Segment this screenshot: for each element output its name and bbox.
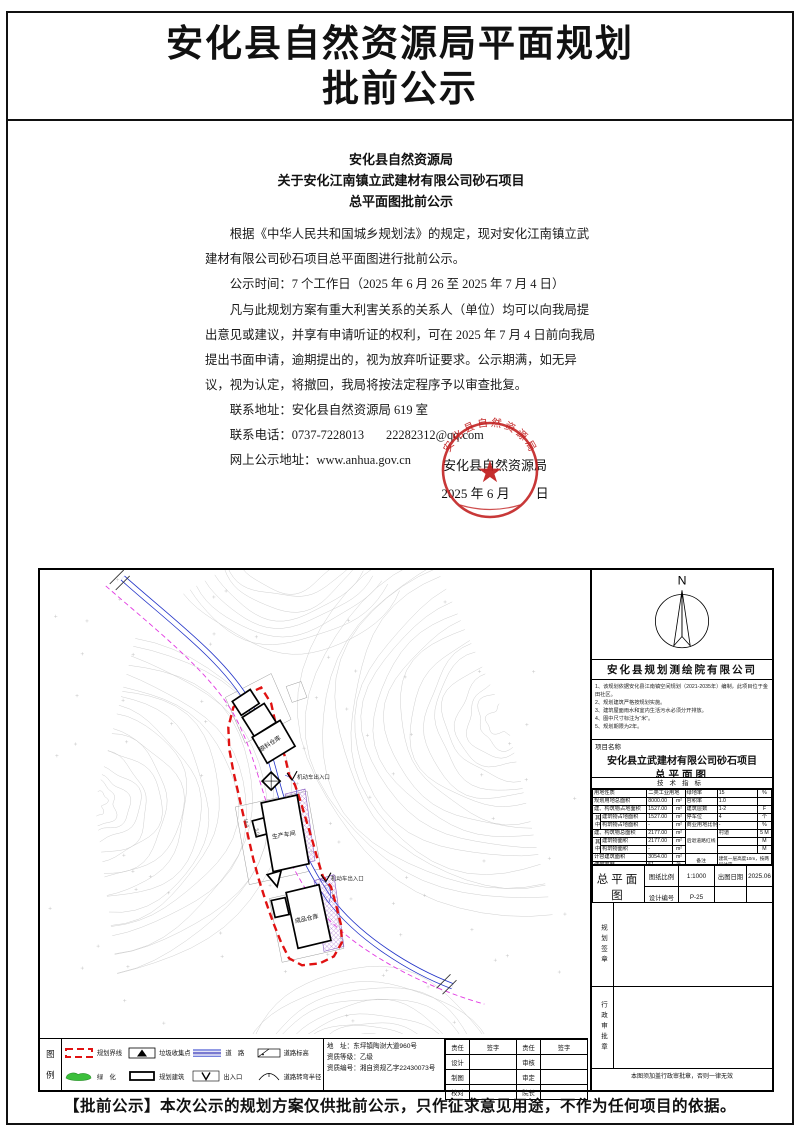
seal-star-icon: ★ [477, 456, 504, 489]
titleblock-note: 本图须加盖行政审批章，否则一律无效 [592, 1069, 772, 1086]
page-title-line2: 批前公示 [322, 66, 478, 111]
contour-line [109, 697, 209, 913]
signature-table-block: 责任签字责任签字 设计审核 制图审定 校对院长 [445, 1039, 588, 1090]
signature-table: 责任签字责任签字 设计审核 制图审定 校对院长 [445, 1039, 588, 1100]
survey-cross-mark [443, 600, 446, 603]
survey-cross-mark [345, 1014, 348, 1017]
survey-cross-mark [49, 907, 52, 910]
survey-cross-mark [132, 653, 135, 656]
contour-line [441, 667, 521, 782]
survey-cross-mark [494, 959, 497, 962]
table-cell: m² [673, 838, 685, 846]
contour-line [112, 674, 246, 936]
table-cell [541, 1055, 588, 1070]
annex-block [271, 898, 289, 918]
notice-paragraph-rights: 凡与此规划方案有重大利害关系的关系人（单位）均可以向我局提出意见或建议，并享有申… [205, 298, 597, 398]
survey-cross-mark [532, 670, 535, 673]
tech-indicators: 用地性质二类工业用地绿地率15% 规划用地总面积8000.00m²容积率1.0 … [592, 789, 772, 865]
survey-cross-mark [480, 773, 483, 776]
legend-item-entrance: 出入口 [192, 1065, 256, 1089]
survey-cross-mark [492, 817, 495, 820]
site-plan-sheet: 原料仓库 生产车间 成品仓库 机动车出入口 机动车出入口 18.0 5.0 N … [38, 568, 774, 1092]
element: 其中建筑物面积2177.00m²M [593, 838, 772, 846]
element [123, 578, 453, 986]
survey-cross-mark [209, 643, 212, 646]
dimension-label: 18.0 [243, 818, 250, 828]
entrance-icon [192, 1070, 220, 1082]
contour-line [279, 999, 460, 1034]
contour-line [228, 570, 352, 596]
table-cell: 二类工业用地 [647, 790, 685, 798]
table-cell [715, 887, 747, 904]
survey-cross-mark [212, 595, 215, 598]
survey-cross-mark [573, 797, 576, 800]
table-cell [747, 887, 773, 904]
notice-heading: 安化县自然资源局 关于安化江南镇立武建材有限公司砂石项目 总平面图批前公示 [205, 150, 597, 212]
survey-cross-mark [399, 933, 402, 936]
survey-cross-mark [81, 652, 84, 655]
notice-heading-line1: 安化县自然资源局 [205, 150, 597, 171]
table-cell: 设计 [446, 1055, 470, 1070]
element: 规划用地总面积8000.00m²容积率1.0 [593, 798, 772, 806]
element: 设计审核 [446, 1055, 588, 1070]
contour-line [190, 584, 388, 645]
table-cell: 签字 [541, 1040, 588, 1055]
contour-line [104, 729, 184, 877]
element: 例 [46, 1069, 55, 1081]
contour-line [100, 767, 142, 842]
table-cell: M [757, 846, 771, 854]
planned-building-icon [128, 1070, 156, 1082]
table-cell: 2177.00 [647, 830, 673, 838]
survey-cross-mark [426, 985, 429, 988]
survey-cross-mark [204, 720, 207, 723]
contour-line [196, 581, 381, 637]
element: 行政审批章 [592, 987, 614, 1068]
firm-grade: 资质等级：乙级 [327, 1053, 441, 1064]
element: 道 路 [225, 1048, 244, 1057]
table-cell: F [757, 806, 771, 814]
trash-collection-point-icon [128, 1047, 156, 1059]
approval-seal-label: 行政审批章 [598, 1001, 608, 1054]
survey-cross-mark [453, 1021, 456, 1024]
firm-cert: 资质编号：湘自资规乙字22430073号 [327, 1064, 441, 1075]
element: 责任签字责任签字 [446, 1040, 588, 1055]
survey-cross-mark [302, 747, 305, 750]
road-elevation-icon [257, 1047, 281, 1059]
north-arrow-box: N [592, 570, 772, 660]
seal-bottom-arc [460, 505, 520, 510]
table-cell: 计容建筑面积 [593, 854, 647, 862]
table-cell: 商业用地比例 [685, 822, 717, 830]
table-cell [470, 1070, 517, 1085]
element: 用地性质二类工业用地绿地率15% 规划用地总面积8000.00m²容积率1.0 … [593, 790, 772, 866]
legend-item-turn-radius: 道路转弯半径 [257, 1065, 321, 1089]
survey-cross-mark [558, 970, 561, 973]
survey-cross-mark [329, 822, 332, 825]
official-seal: 安化县自然资源局 ★ [405, 408, 575, 540]
element [262, 1053, 264, 1055]
note-item: 2、规划建筑严格按规划实施。 [595, 699, 769, 707]
element: 总平面图图纸比例1:1000出图日期2025.06 [593, 866, 773, 887]
contour-line [485, 704, 510, 736]
table-cell: 4 [717, 814, 757, 822]
contour-line [104, 734, 167, 874]
survey-cross-mark [385, 969, 388, 972]
note-item: 3、建筑屋面雨水和室内生活污水必须分开排放。 [595, 707, 769, 715]
table-cell: 1527.00 [647, 806, 673, 814]
survey-cross-mark [116, 578, 119, 581]
survey-cross-mark [525, 778, 528, 781]
element: 绿 化 [97, 1072, 116, 1081]
notice-heading-line3: 总平面图批前公示 [205, 192, 597, 213]
survey-cross-mark [74, 742, 77, 745]
survey-cross-mark [508, 742, 511, 745]
table-cell: 用地性质 [593, 790, 647, 798]
table-cell: M [757, 838, 771, 846]
table-cell: 绿地率 [685, 790, 717, 798]
table-cell: m² [673, 822, 685, 830]
contour-line [259, 988, 477, 1034]
survey-cross-mark [470, 928, 473, 931]
survey-cross-mark [525, 723, 528, 726]
contour-line [410, 640, 526, 806]
legend-bar: 图 例 规划界线 垃圾收集点 道 路 道路标高 [40, 1038, 588, 1090]
table-cell: % [757, 790, 771, 798]
survey-cross-mark [123, 999, 126, 1002]
legend-item-road-elevation: 道路标高 [257, 1041, 321, 1065]
table-cell: 设计编号 [645, 887, 679, 904]
survey-cross-mark [392, 772, 395, 775]
note-item: 1、该规划依据安化县江南镇空间规划（2021-2035年）编制，此项目位于金田社… [595, 683, 769, 699]
legend-item-boundary: 规划界线 [64, 1041, 128, 1065]
approval-seal-area [614, 987, 772, 1068]
element [123, 578, 453, 986]
contour-line [183, 591, 399, 655]
contour-line [111, 691, 219, 925]
contour-line [98, 775, 130, 831]
contour-line [454, 674, 516, 767]
table-cell: 后退道路红线 [685, 830, 717, 854]
survey-cross-mark [221, 955, 224, 958]
contour-line [361, 602, 537, 848]
plan-notes: 1、该规划依据安化县江南镇空间规划（2021-2035年）编制，此项目位于金田社… [592, 680, 772, 740]
table-cell [470, 1055, 517, 1070]
contour-line [373, 614, 534, 837]
survey-cross-mark [225, 704, 228, 707]
contour-line [478, 694, 513, 751]
table-cell: 15 [717, 790, 757, 798]
legend-item-trash-point: 垃圾收集点 [128, 1041, 192, 1065]
survey-cross-mark [81, 966, 84, 969]
element [258, 1049, 280, 1057]
survey-cross-mark [268, 884, 271, 887]
contour-line [238, 570, 340, 594]
table-cell: 规划用地总面积 [593, 798, 647, 806]
road-icon [192, 1047, 222, 1059]
survey-cross-mark [423, 894, 426, 897]
element: 道路标高 [284, 1048, 309, 1057]
turn-radius-icon [257, 1070, 281, 1082]
planning-boundary-icon [64, 1047, 94, 1059]
table-cell: 构筑物面积 [601, 846, 647, 854]
survey-cross-mark [97, 945, 100, 948]
table-cell: m² [673, 798, 685, 806]
table-cell: 5 M [757, 830, 771, 838]
element: 用地性质二类工业用地绿地率15% [593, 790, 772, 798]
element: 图 [46, 1048, 55, 1060]
survey-cross-mark [337, 840, 340, 843]
sheet-name: 总平面图 [593, 866, 645, 904]
table-cell: 出图日期 [715, 866, 747, 887]
survey-cross-mark [255, 635, 258, 638]
element [286, 682, 307, 703]
survey-cross-mark [351, 1019, 354, 1022]
table-cell: 建筑物面积 [601, 838, 647, 846]
contour-line [215, 571, 364, 621]
table-cell: 构筑物占地面积 [601, 822, 647, 830]
survey-cross-mark [382, 974, 385, 977]
table-cell: 2025.06 [747, 866, 773, 887]
seal-ring-text: 安化县自然资源局 [440, 416, 539, 456]
page-title-line1: 安化县自然资源局平面规划 [166, 21, 634, 66]
survey-cross-mark [85, 619, 88, 622]
table-cell: % [757, 822, 771, 830]
label-entrance-1: 机动车出入口 [297, 773, 330, 781]
contour-line [335, 570, 546, 889]
table-cell: 容积率 [685, 798, 717, 806]
survey-cross-mark [219, 931, 222, 934]
contour-line [205, 576, 373, 629]
contour-line [322, 570, 545, 888]
contour-line [304, 1025, 432, 1034]
survey-cross-mark [212, 632, 215, 635]
element [66, 1049, 92, 1057]
table-cell [717, 838, 757, 846]
contour-line [107, 714, 187, 896]
element [682, 590, 690, 645]
site-plan-canvas: 原料仓库 生产车间 成品仓库 机动车出入口 机动车出入口 18.0 5.0 [40, 570, 588, 1034]
survey-cross-mark [548, 857, 551, 860]
contour-line [401, 630, 531, 825]
survey-cross-mark [478, 670, 481, 673]
table-cell: 1:1000 [679, 866, 715, 887]
contour-line [435, 652, 523, 790]
table-cell: 1527.00 [647, 814, 673, 822]
contour-line [96, 791, 108, 816]
survey-cross-mark [368, 796, 371, 799]
survey-company-name: 安化县规划测绘院有限公司 [592, 660, 772, 680]
contact-phone: 联系电话：0737-7228013 [230, 428, 364, 442]
survey-cross-mark [170, 722, 173, 725]
table-cell: m² [673, 846, 685, 854]
label-entrance-2: 机动车出入口 [331, 875, 364, 883]
element: 规划建筑 [159, 1072, 184, 1081]
element: 总平面图图纸比例1:1000出图日期2025.06 设计编号P-25 [593, 866, 773, 904]
survey-cross-mark [55, 754, 58, 757]
small-structure [267, 871, 281, 887]
tech-indicators-header: 技术指标 [592, 778, 772, 789]
survey-cross-mark [75, 694, 78, 697]
footer-disclaimer: 【批前公示】本次公示的规划方案仅供批前公示，只作征求意见用途，不作为任何项目的依… [0, 1094, 800, 1116]
table-cell: m² [673, 830, 685, 838]
contour-line [383, 620, 532, 828]
survey-cross-mark [506, 954, 509, 957]
survey-cross-mark [167, 891, 170, 894]
table-cell: - [647, 846, 673, 854]
survey-cross-mark [345, 707, 348, 710]
survey-cross-mark [315, 696, 318, 699]
survey-cross-mark [482, 859, 485, 862]
element: 构筑物占地面积-m²商业用地比例-% [593, 822, 772, 830]
survey-cross-mark [200, 700, 203, 703]
legend-item-greenery: 绿 化 [64, 1065, 128, 1089]
firm-address-block: 地 址：东坪镇陶澍大道960号 资质等级：乙级 资质编号：湘自资规乙字22430… [324, 1039, 445, 1090]
table-cell: 2177.00 [647, 838, 673, 846]
table-cell: 审定 [517, 1070, 541, 1085]
approval-seal-box: 行政审批章 [592, 987, 772, 1069]
element: 建、构筑物占地面积1527.00m²建筑层数1-2F [593, 806, 772, 814]
contour-line [466, 685, 514, 759]
element: 责任签字责任签字 设计审核 制图审定 校对院长 [446, 1040, 588, 1100]
contour-line [264, 1000, 471, 1034]
planning-seal-box: 规划签章 [592, 903, 772, 987]
table-cell: 建筑物占地面积 [601, 814, 647, 822]
seal-stamp-icon: 安化县自然资源局 ★ [405, 408, 575, 540]
element [130, 1072, 154, 1080]
notice-paragraph-basis: 根据《中华人民共和国城乡规划法》的规定，现对安化江南镇立武建材有限公司砂石项目总… [205, 222, 597, 272]
north-arrow-icon: N [651, 572, 713, 658]
table-cell [541, 1070, 588, 1085]
titleblock-panel: N 安化县规划测绘院有限公司 1、该规划依据安化县江南镇空间规划（2021-20… [590, 570, 772, 1090]
legend-item-road: 道 路 [192, 1041, 256, 1065]
element [66, 1073, 91, 1081]
table-cell: 建、构筑物总面积 [593, 830, 647, 838]
survey-cross-mark [284, 970, 287, 973]
survey-cross-mark [563, 912, 566, 915]
element: 规划签章 [592, 903, 614, 986]
table-cell: 签字 [470, 1040, 517, 1055]
survey-cross-mark [134, 888, 137, 891]
contour-line [107, 705, 201, 896]
planning-seal-label: 规划签章 [598, 924, 608, 966]
table-cell: 停车位 [685, 814, 717, 822]
survey-cross-mark [349, 897, 352, 900]
project-name-label: 项目名称 [595, 741, 769, 751]
element: 构筑物面积-m²M [593, 846, 772, 854]
element: 其中建筑物占地面积1527.00m²停车位4个 [593, 814, 772, 822]
element: 安化县自然资源局 [440, 416, 539, 456]
survey-cross-mark [149, 875, 152, 878]
project-sheet-name: 总平面图 [595, 767, 769, 778]
table-cell: 备注 [685, 854, 717, 866]
firm-address: 地 址：东坪镇陶澍大道960号 [327, 1042, 441, 1053]
legend-grid: 规划界线 垃圾收集点 道 路 道路标高 绿 化 [62, 1039, 324, 1090]
contour-line [305, 570, 548, 898]
survey-cross-mark [354, 669, 357, 672]
table-cell: 责任 [446, 1040, 470, 1055]
element: 制图审定 [446, 1070, 588, 1085]
survey-cross-mark [327, 656, 330, 659]
element: 垃圾收集点 [159, 1048, 190, 1057]
contour-line [311, 1033, 429, 1034]
legend-title: 图 例 [40, 1039, 62, 1090]
table-cell: 1-2 [717, 806, 757, 814]
table-cell: - [647, 822, 673, 830]
element: 出入口 [223, 1072, 242, 1081]
note-item: 5、规划期限为2年。 [595, 723, 769, 731]
survey-cross-mark [122, 854, 125, 857]
survey-cross-mark [126, 965, 129, 968]
survey-cross-mark [392, 902, 395, 905]
contour-line [291, 1023, 449, 1034]
table-cell: - [717, 822, 757, 830]
table-cell: 图纸比例 [645, 866, 679, 887]
table-cell: 责任 [517, 1040, 541, 1055]
survey-cross-mark [162, 1022, 165, 1025]
survey-cross-mark [326, 953, 329, 956]
survey-cross-mark [366, 734, 369, 737]
table-cell: 建筑一层高度10m，按两层计容 [717, 854, 771, 866]
title-banner: 安化县自然资源局平面规划 批前公示 [6, 11, 794, 121]
table-cell: 其中 [593, 814, 601, 830]
table-cell: m² [673, 814, 685, 822]
table-cell: 审核 [517, 1055, 541, 1070]
note-item: 4、图中尺寸标注为“米”。 [595, 715, 769, 723]
element: 道路转弯半径 [284, 1072, 321, 1081]
sheet-info-table: 总平面图图纸比例1:1000出图日期2025.06 设计编号P-25 [592, 865, 772, 903]
element: 计容建筑面积3054.00m²备注建筑一层高度10m，按两层计容 [593, 854, 772, 862]
contour-line [297, 570, 552, 917]
survey-cross-mark [224, 589, 227, 592]
road-break-marks [110, 570, 457, 994]
table-cell: m² [673, 854, 685, 862]
table-cell: 1.0 [717, 798, 757, 806]
tech-table: 用地性质二类工业用地绿地率15% 规划用地总面积8000.00m²容积率1.0 … [592, 789, 772, 865]
table-cell: 8000.00 [647, 798, 673, 806]
notice-heading-line2: 关于安化江南镇立武建材有限公司砂石项目 [205, 171, 597, 192]
table-cell: 村道 [717, 830, 757, 838]
table-cell: 个 [757, 814, 771, 822]
table-cell: 建筑层数 [685, 806, 717, 814]
contour-line [423, 643, 523, 798]
survey-cross-mark [131, 870, 134, 873]
table-cell [757, 798, 771, 806]
table-cell: 制图 [446, 1070, 470, 1085]
table-cell: m² [673, 806, 685, 814]
table-cell: P-25 [679, 887, 715, 904]
table-cell: 建、构筑物占地面积 [593, 806, 647, 814]
notice-paragraph-period: 公示时间：7 个工作日（2025 年 6 月 26 至 2025 年 7 月 4… [205, 272, 597, 297]
planning-seal-area [614, 903, 772, 986]
survey-cross-mark [405, 876, 408, 879]
announcement-page: 安化县自然资源局平面规划 批前公示 安化县自然资源局 关于安化江南镇立武建材有限… [0, 0, 800, 1131]
survey-cross-mark [125, 740, 128, 743]
legend-item-planned-building: 规划建筑 [128, 1065, 192, 1089]
table-cell [717, 846, 757, 854]
element [674, 590, 682, 645]
project-name-box: 项目名称 安化县立武建材有限公司砂石项目 总平面图 [592, 740, 772, 778]
survey-cross-mark [54, 615, 57, 618]
table-cell: 其中 [593, 838, 601, 854]
element: N [678, 573, 687, 587]
table-cell: 3054.00 [647, 854, 673, 862]
sheet-info: 总平面图图纸比例1:1000出图日期2025.06 设计编号P-25 [592, 865, 772, 903]
project-name: 安化县立武建材有限公司砂石项目 [595, 752, 769, 767]
contour-line [355, 589, 538, 856]
element: 建、构筑物总面积2177.00m²后退道路红线村道5 M [593, 830, 772, 838]
contour-line [102, 750, 162, 861]
